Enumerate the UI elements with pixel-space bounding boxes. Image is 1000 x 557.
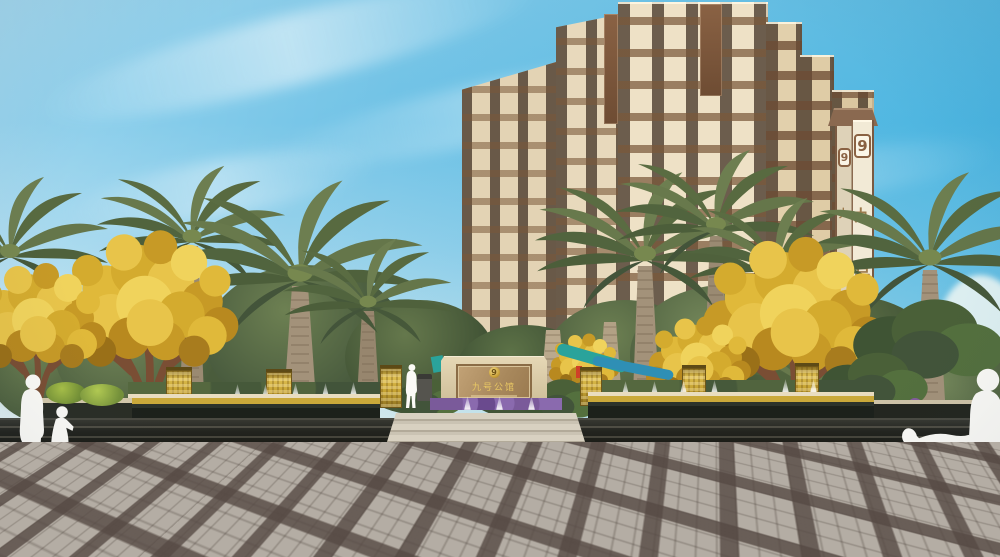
silhouette-adult xyxy=(20,375,44,471)
silhouette-shadow xyxy=(11,467,55,475)
pigeon xyxy=(763,473,775,486)
pigeon xyxy=(625,483,640,500)
pigeon xyxy=(717,478,730,493)
silhouette-child xyxy=(51,406,74,475)
pigeon xyxy=(607,456,618,468)
staffage-layer xyxy=(0,0,1000,557)
silhouette-visitor xyxy=(406,364,417,408)
pigeon xyxy=(698,460,709,472)
pigeon xyxy=(676,471,689,485)
entrance-plaza-rendering: 9 九 号 公 9 九 号 公 馆 xyxy=(0,0,1000,557)
silhouette-dog xyxy=(902,428,975,469)
silhouette-shadow xyxy=(912,466,964,474)
